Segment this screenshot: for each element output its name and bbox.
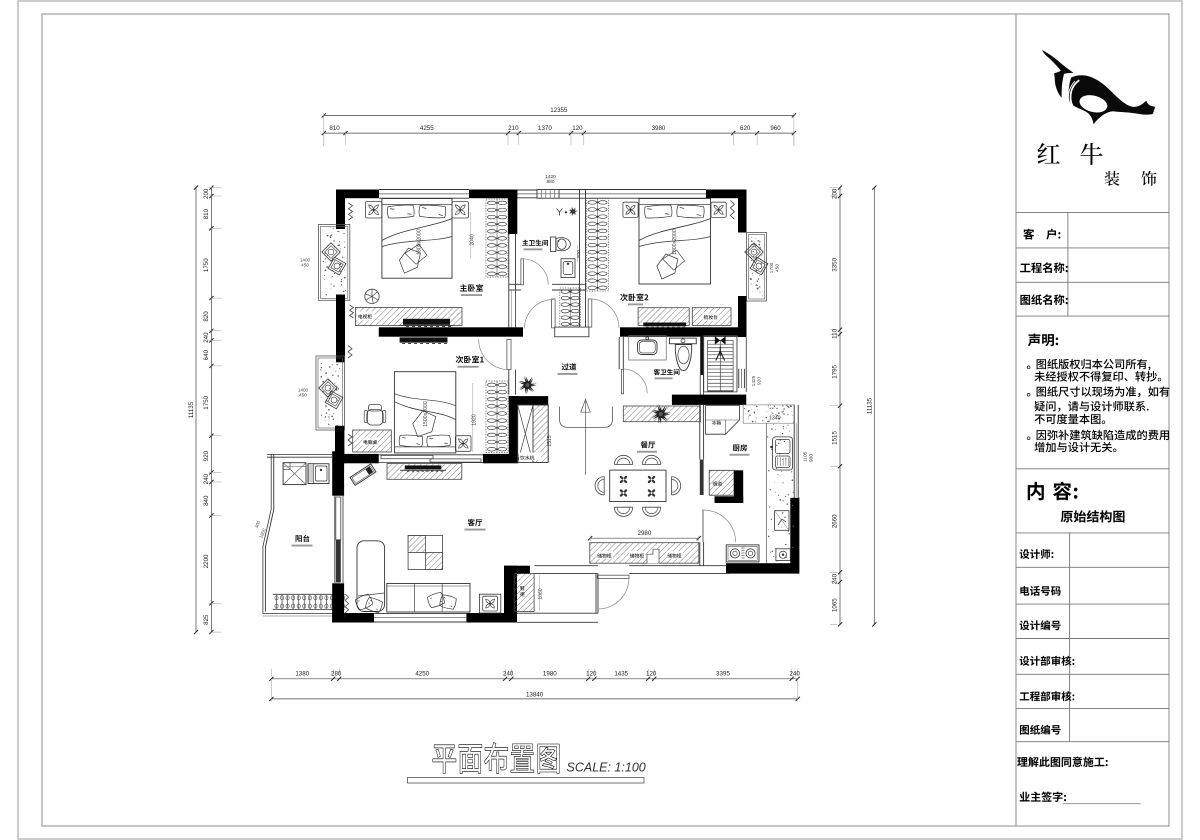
svg-text:1065: 1065 xyxy=(832,598,839,612)
svg-text:1800x2000: 1800x2000 xyxy=(672,229,678,255)
svg-text:1800x2000: 1800x2000 xyxy=(417,229,423,255)
svg-text:1340: 1340 xyxy=(769,416,781,422)
svg-text:810: 810 xyxy=(203,208,210,219)
svg-text:920: 920 xyxy=(756,377,762,385)
svg-text:1370: 1370 xyxy=(538,125,552,132)
svg-text:1750: 1750 xyxy=(203,395,210,409)
svg-text:2200: 2200 xyxy=(203,554,210,568)
svg-text:900: 900 xyxy=(809,454,815,462)
svg-text:810: 810 xyxy=(329,125,340,132)
svg-text:640: 640 xyxy=(203,349,210,360)
svg-text:120: 120 xyxy=(586,671,597,678)
svg-text:3395: 3395 xyxy=(716,671,730,678)
svg-text:110: 110 xyxy=(832,328,839,338)
svg-text:240: 240 xyxy=(790,671,801,678)
svg-text:3350: 3350 xyxy=(832,257,839,271)
svg-text:2660: 2660 xyxy=(832,514,839,528)
svg-text:200: 200 xyxy=(832,188,839,199)
svg-text:11135: 11135 xyxy=(188,401,195,418)
svg-text:920: 920 xyxy=(203,450,210,461)
svg-text:2980: 2980 xyxy=(638,530,652,537)
svg-text:1980: 1980 xyxy=(543,671,557,678)
svg-text:1795: 1795 xyxy=(832,364,839,378)
svg-text:840: 840 xyxy=(203,495,210,506)
svg-text:4250: 4250 xyxy=(415,671,429,678)
svg-text:2040: 2040 xyxy=(470,234,476,246)
svg-text:450: 450 xyxy=(301,263,309,268)
svg-text:1425: 1425 xyxy=(751,375,757,386)
svg-text:880: 880 xyxy=(546,179,554,185)
svg-text:450: 450 xyxy=(774,264,780,272)
svg-text:960: 960 xyxy=(770,125,781,132)
svg-text:210: 210 xyxy=(508,125,519,132)
svg-text:800: 800 xyxy=(576,250,582,258)
svg-text:240: 240 xyxy=(203,332,210,343)
svg-text:1515: 1515 xyxy=(832,431,839,445)
svg-text:120: 120 xyxy=(572,125,583,132)
svg-text:120: 120 xyxy=(646,671,657,678)
svg-text:SCALE: 1:100: SCALE: 1:100 xyxy=(567,761,646,775)
svg-text:620: 620 xyxy=(740,125,751,132)
svg-text:1380: 1380 xyxy=(295,671,309,678)
svg-text:1700: 1700 xyxy=(769,262,775,273)
svg-text:200: 200 xyxy=(203,188,210,199)
svg-text:13840: 13840 xyxy=(526,691,544,698)
svg-text:1920: 1920 xyxy=(472,414,478,426)
svg-text:240: 240 xyxy=(832,573,839,584)
svg-text:820: 820 xyxy=(203,311,210,322)
svg-text:4255: 4255 xyxy=(420,125,434,132)
svg-text:1105: 1105 xyxy=(803,451,809,462)
svg-text:12355: 12355 xyxy=(550,107,568,114)
svg-text:1515: 1515 xyxy=(547,435,553,446)
svg-text:3980: 3980 xyxy=(652,125,666,132)
svg-text:450: 450 xyxy=(299,393,307,398)
svg-text:280: 280 xyxy=(331,671,342,678)
svg-text:1435: 1435 xyxy=(614,671,628,678)
svg-text:1060: 1060 xyxy=(538,588,544,599)
svg-text:240: 240 xyxy=(203,473,210,484)
svg-text:1500x2000: 1500x2000 xyxy=(423,401,429,427)
svg-text:825: 825 xyxy=(203,614,210,625)
svg-text:240: 240 xyxy=(503,671,514,678)
svg-text:1750: 1750 xyxy=(203,258,210,272)
svg-text:11135: 11135 xyxy=(866,397,873,414)
